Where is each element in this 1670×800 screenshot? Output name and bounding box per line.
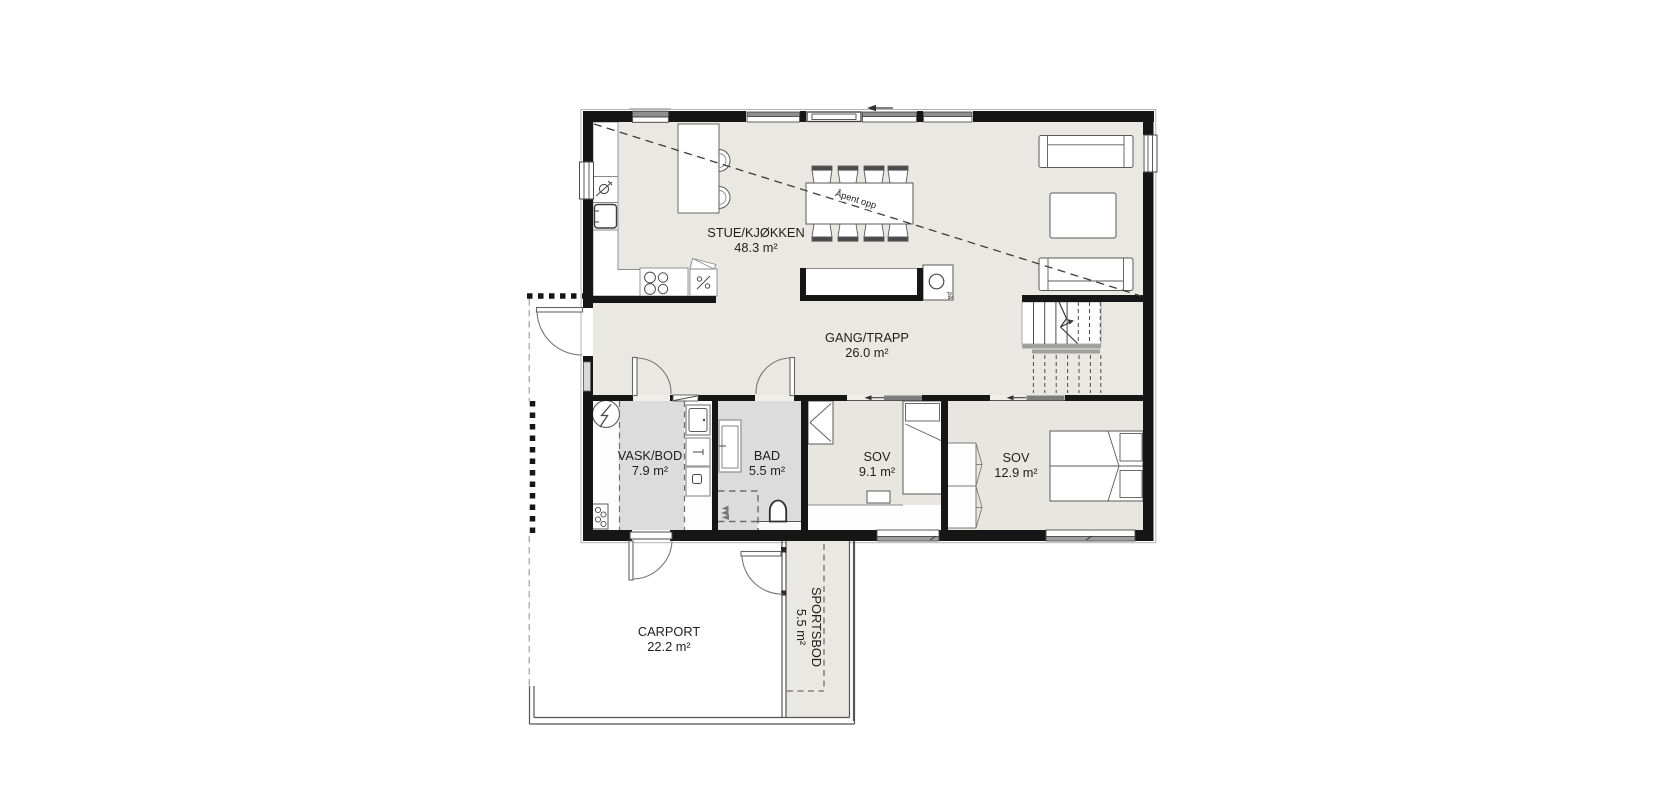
svg-text:STUE/KJØKKEN: STUE/KJØKKEN	[707, 225, 804, 240]
svg-text:12.9 m²: 12.9 m²	[994, 465, 1038, 480]
svg-text:22.2 m²: 22.2 m²	[647, 639, 691, 654]
svg-text:på: på	[946, 292, 954, 300]
svg-text:VASK/BOD: VASK/BOD	[618, 448, 682, 463]
svg-text:26.0 m²: 26.0 m²	[845, 345, 889, 360]
svg-text:CARPORT: CARPORT	[638, 624, 701, 639]
svg-text:5.5 m²: 5.5 m²	[749, 463, 786, 478]
svg-text:7.9 m²: 7.9 m²	[632, 463, 669, 478]
svg-text:SPORTSBOD: SPORTSBOD	[809, 587, 824, 667]
svg-text:SOV: SOV	[863, 449, 890, 464]
svg-text:5.5 m²: 5.5 m²	[794, 609, 809, 646]
svg-text:SOV: SOV	[1002, 450, 1029, 465]
svg-text:9.1 m²: 9.1 m²	[859, 464, 896, 479]
svg-text:GANG/TRAPP: GANG/TRAPP	[825, 330, 909, 345]
svg-text:BAD: BAD	[754, 448, 780, 463]
svg-text:48.3 m²: 48.3 m²	[734, 240, 778, 255]
